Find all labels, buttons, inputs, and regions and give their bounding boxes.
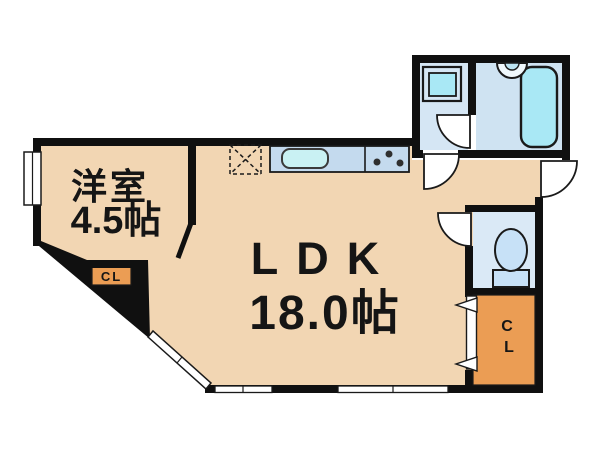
washing-machine-tub — [429, 73, 456, 96]
stove-burner-icon — [386, 151, 393, 158]
closet-right-label-l: L — [504, 339, 514, 356]
wall-top-main — [33, 138, 412, 146]
kitchen-sink-icon — [282, 149, 328, 168]
wall-western-ldk-divider — [188, 138, 196, 225]
stove-burner-icon — [397, 160, 404, 167]
wall-toilet-closet-divider — [465, 288, 543, 295]
bottom-window-large — [338, 386, 448, 393]
ldk-name: LDK — [251, 233, 397, 284]
bathtub-icon — [521, 67, 557, 147]
left-window — [24, 152, 41, 205]
western-room-size: 4.5帖 — [71, 200, 162, 242]
closet-left-label: CL — [101, 269, 122, 284]
toilet-tank — [493, 270, 529, 287]
wall-bath-block-left — [412, 55, 420, 158]
closet-right-label-c: C — [501, 318, 513, 335]
wall-bath-block-top — [412, 55, 570, 63]
wall-ldk-right-lower — [465, 370, 473, 385]
bottom-window-small — [215, 386, 272, 393]
floorplan-drawing: CL C L — [0, 0, 600, 450]
bathroom — [476, 63, 562, 150]
closet-right: C L — [473, 295, 535, 385]
wall-washroom-bottom-left — [412, 150, 423, 158]
wall-toilet-top — [465, 205, 543, 212]
stove-burner-icon — [374, 159, 381, 166]
toilet-icon — [495, 229, 527, 271]
wall-bath-block-right — [562, 55, 570, 160]
ldk-size: 18.0帖 — [249, 287, 400, 340]
toilet-room — [473, 212, 535, 288]
wall-right-lower — [535, 212, 543, 393]
floorplan-page: CL C L — [0, 0, 600, 450]
wall-western-room-bottom — [87, 260, 148, 268]
closet-left: CL — [92, 267, 131, 285]
wall-washroom-bottom-right — [458, 150, 570, 158]
wall-washroom-bathroom-divider — [468, 63, 476, 115]
